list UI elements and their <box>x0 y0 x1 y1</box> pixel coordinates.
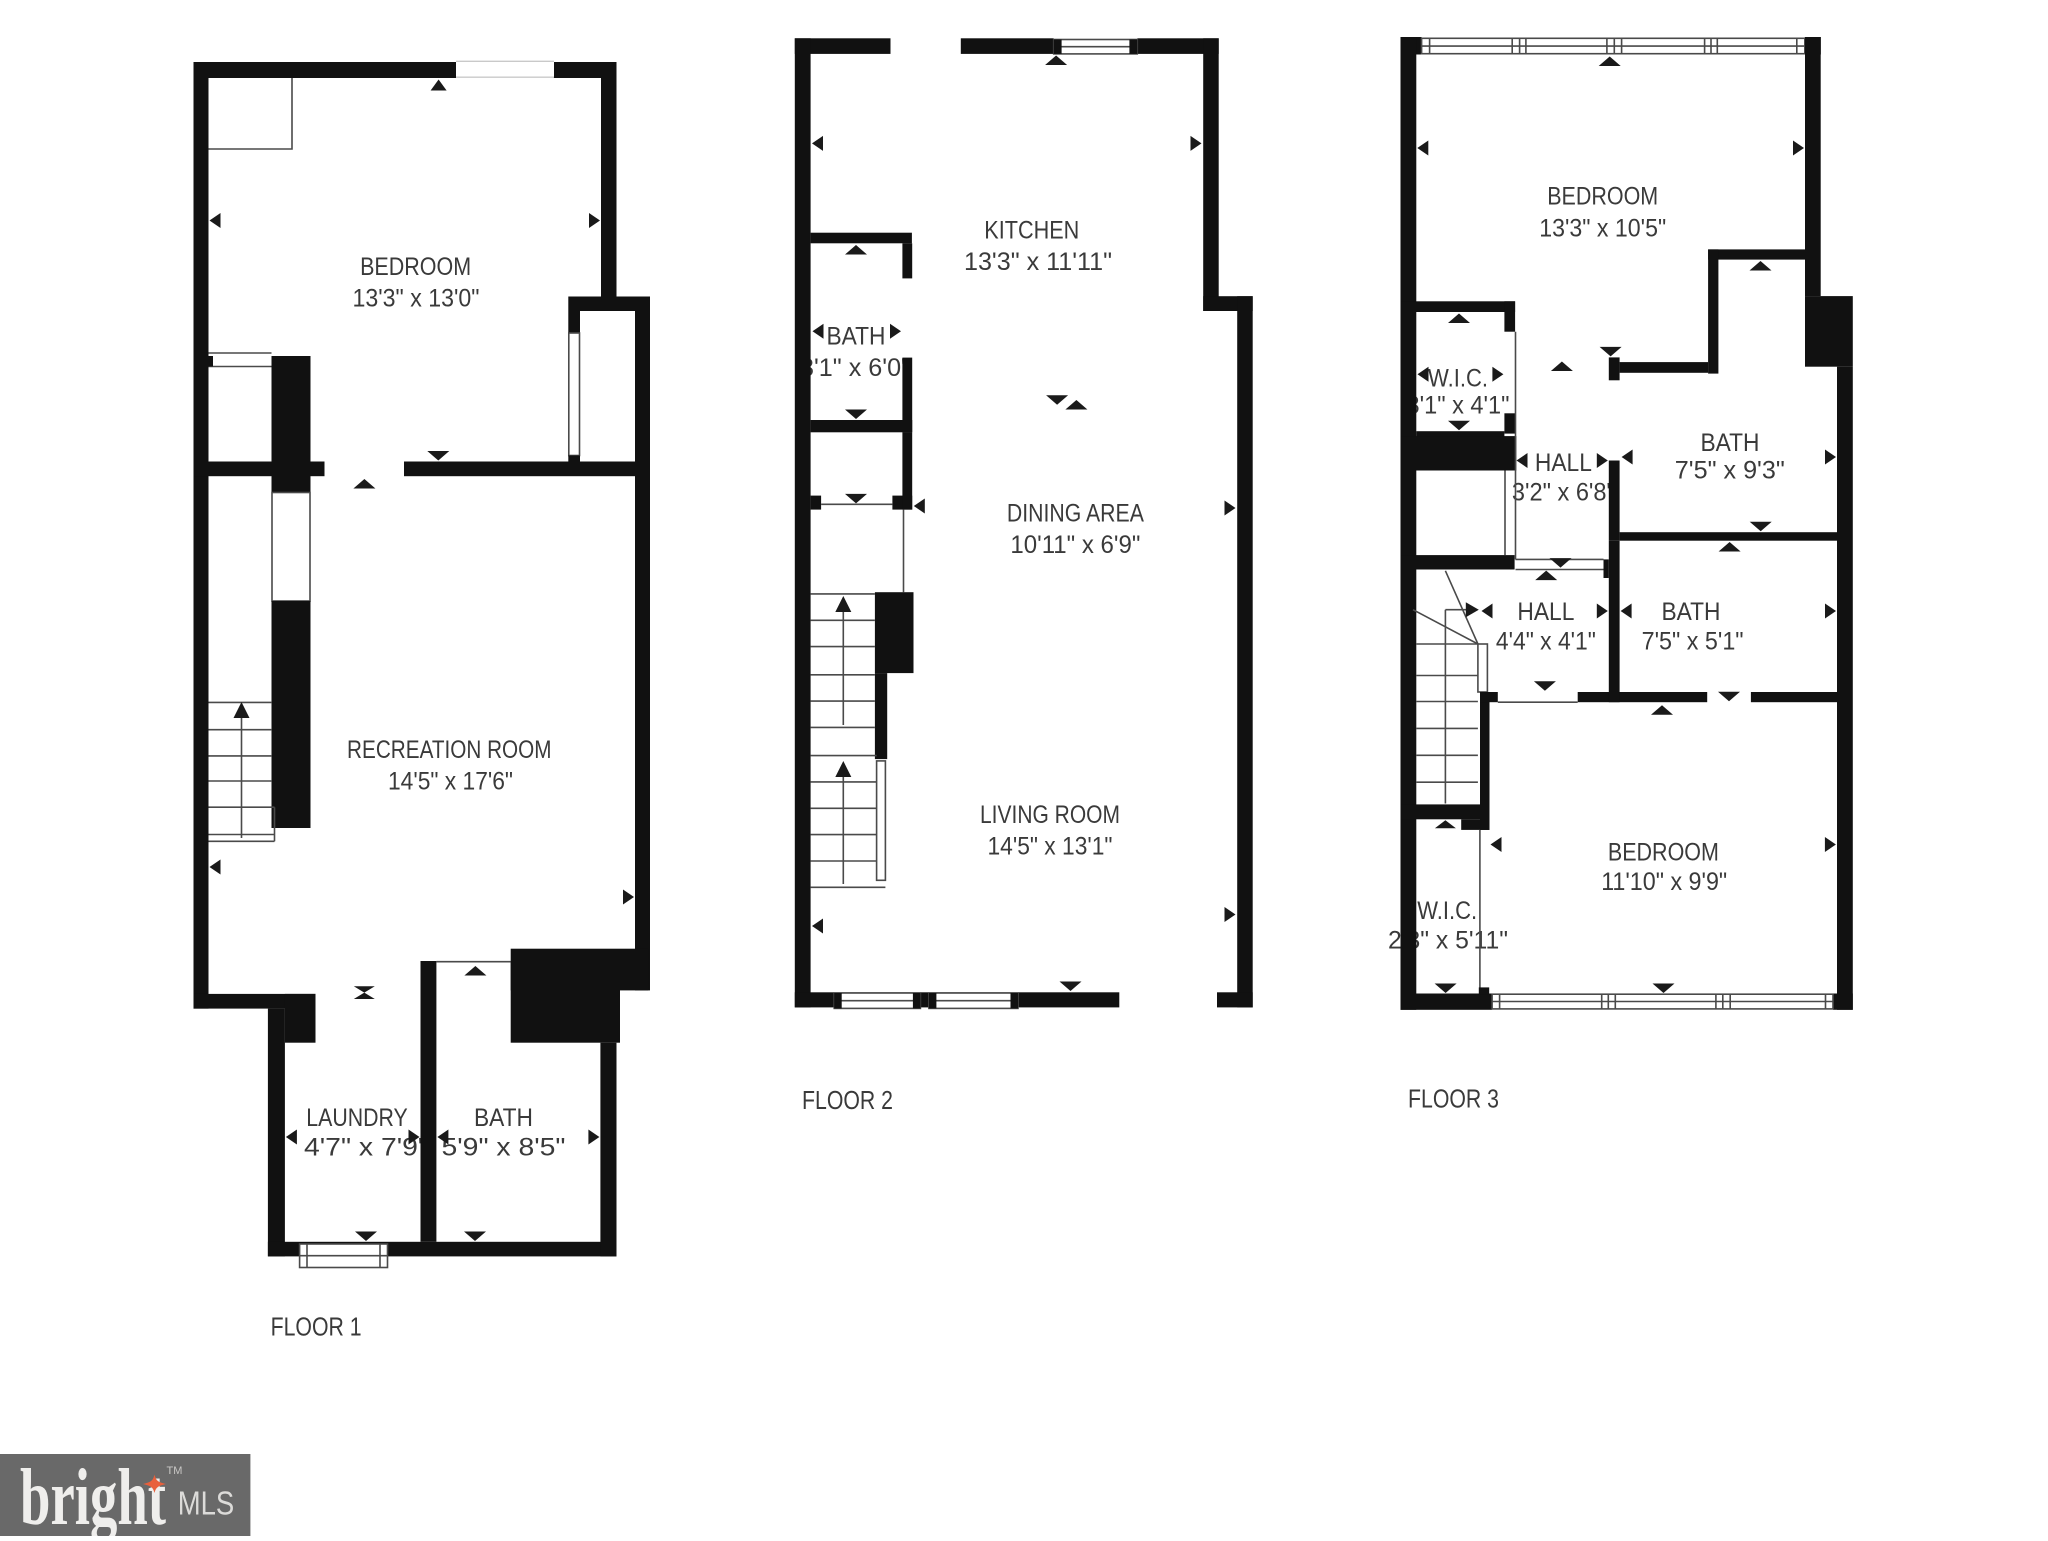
svg-text:BATH: BATH <box>1701 429 1760 457</box>
svg-text:KITCHEN: KITCHEN <box>984 217 1079 245</box>
svg-text:5'9" x 8'5": 5'9" x 8'5" <box>442 1134 566 1162</box>
svg-text:BATH: BATH <box>474 1104 533 1132</box>
svg-text:BATH: BATH <box>1662 598 1721 626</box>
svg-text:TM: TM <box>167 1465 183 1477</box>
svg-text:BEDROOM: BEDROOM <box>1547 183 1658 211</box>
svg-text:3'1" x 4'1": 3'1" x 4'1" <box>1407 392 1510 420</box>
svg-text:10'11" x 6'9": 10'11" x 6'9" <box>1010 531 1140 559</box>
svg-text:LIVING ROOM: LIVING ROOM <box>980 801 1120 829</box>
svg-text:FLOOR 2: FLOOR 2 <box>802 1085 893 1115</box>
svg-text:3'1" x 6'0": 3'1" x 6'0" <box>800 354 910 382</box>
svg-text:BATH: BATH <box>827 323 886 351</box>
svg-text:DINING AREA: DINING AREA <box>1007 499 1144 527</box>
svg-text:HALL: HALL <box>1535 449 1592 477</box>
svg-text:7'5" x 9'3": 7'5" x 9'3" <box>1675 456 1785 484</box>
svg-text:LAUNDRY: LAUNDRY <box>306 1104 408 1132</box>
svg-text:14'5" x 17'6": 14'5" x 17'6" <box>388 768 513 796</box>
svg-text:FLOOR 3: FLOOR 3 <box>1408 1084 1499 1114</box>
svg-text:W.I.C.: W.I.C. <box>1428 365 1488 393</box>
svg-text:7'5" x 5'1": 7'5" x 5'1" <box>1642 627 1744 655</box>
svg-text:4'4" x 4'1": 4'4" x 4'1" <box>1496 627 1596 655</box>
svg-text:HALL: HALL <box>1517 598 1574 626</box>
svg-text:3'2" x 6'8": 3'2" x 6'8" <box>1512 479 1615 507</box>
svg-text:13'3" x 11'11": 13'3" x 11'11" <box>964 248 1112 276</box>
svg-text:11'10" x 9'9": 11'10" x 9'9" <box>1601 868 1727 896</box>
svg-text:MLS: MLS <box>178 1486 235 1523</box>
svg-text:W.I.C.: W.I.C. <box>1417 897 1477 925</box>
svg-text:FLOOR 1: FLOOR 1 <box>271 1312 362 1342</box>
svg-text:bright: bright <box>20 1454 166 1536</box>
svg-text:13'3" x 10'5": 13'3" x 10'5" <box>1539 214 1666 242</box>
svg-text:13'3" x 13'0": 13'3" x 13'0" <box>353 285 480 313</box>
svg-text:14'5" x 13'1": 14'5" x 13'1" <box>988 833 1113 861</box>
svg-text:BEDROOM: BEDROOM <box>360 253 471 281</box>
svg-text:RECREATION ROOM: RECREATION ROOM <box>347 736 552 764</box>
svg-text:BEDROOM: BEDROOM <box>1608 839 1719 867</box>
